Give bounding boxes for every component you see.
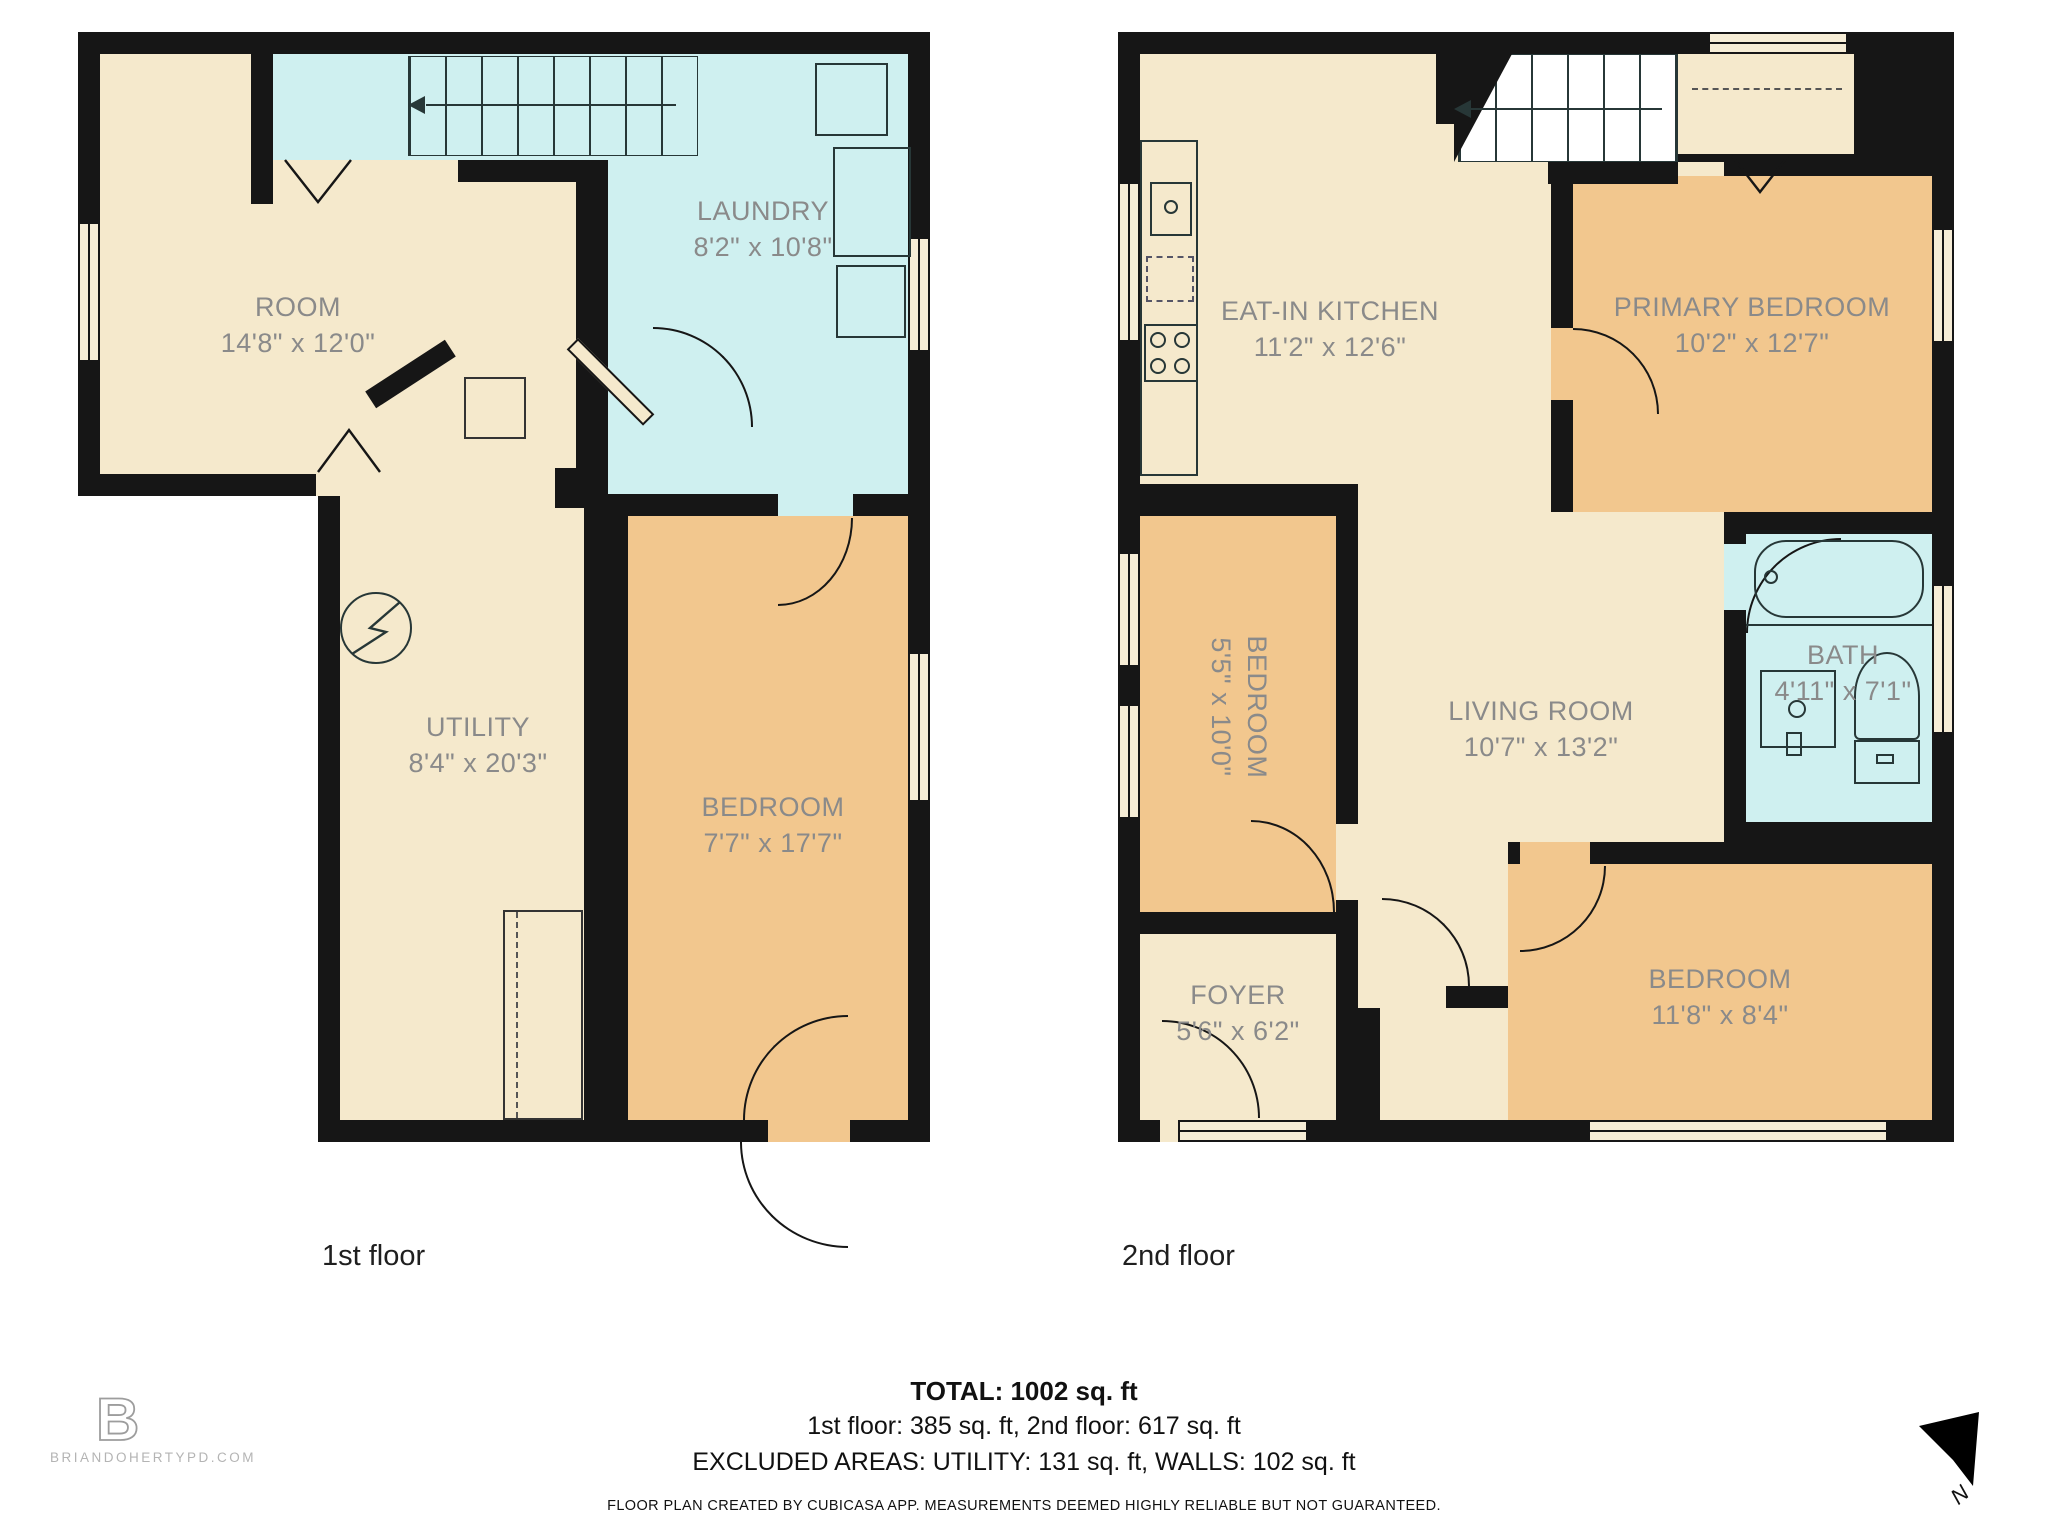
total-area-text: TOTAL: 1002 sq. ft: [0, 1376, 2048, 1407]
room-dims: 4'11" x 7'1": [1703, 674, 1983, 710]
window-icon: [1118, 704, 1140, 819]
burner-icon: [1150, 332, 1166, 348]
room-dims: 11'2" x 12'6": [1180, 330, 1480, 366]
room-dims: 8'4" x 20'3": [328, 746, 628, 782]
room-dims: 10'2" x 12'7": [1532, 326, 1972, 362]
room-name: ROOM: [148, 290, 448, 326]
room-label: BEDROOM 11'8" x 8'4": [1570, 962, 1870, 1034]
window-icon: [1178, 1120, 1308, 1142]
room-label: BEDROOM 7'7" x 17'7": [623, 790, 923, 862]
burner-icon: [1150, 358, 1166, 374]
room-label: ROOM 14'8" x 12'0": [148, 290, 448, 362]
room-label: FOYER 5'6" x 6'2": [1088, 978, 1388, 1050]
room-name: LIVING ROOM: [1391, 694, 1691, 730]
dryer-icon: [836, 265, 906, 338]
room-dims: 8'2" x 10'8": [613, 230, 913, 266]
window-icon: [1118, 552, 1140, 667]
north-arrow-icon: [1916, 1408, 1988, 1492]
sliding-door-icon: [516, 912, 518, 1118]
window-icon: [1118, 182, 1140, 342]
double-door-icon: [283, 158, 353, 204]
room-label: EAT-IN KITCHEN 11'2" x 12'6": [1180, 294, 1480, 366]
closet-niche: [503, 910, 583, 1120]
floor1-caption: 1st floor: [322, 1240, 425, 1273]
room-name: BEDROOM: [1238, 527, 1274, 887]
stair-arrow-shaft: [1470, 108, 1662, 110]
lightning-icon: [340, 592, 412, 664]
room-label: UTILITY 8'4" x 20'3": [328, 710, 628, 782]
door-gap: [1520, 842, 1590, 864]
door-gap: [1724, 544, 1746, 610]
double-door-icon: [316, 428, 382, 474]
wall-segment: [251, 54, 273, 204]
bathtub-icon: [1754, 540, 1924, 618]
double-door-icon: [1730, 154, 1790, 194]
chimney-block: [555, 468, 599, 508]
bath-divider: [1746, 624, 1932, 626]
window-icon: [1588, 1120, 1888, 1142]
room-label: PRIMARY BEDROOM 10'2" x 12'7": [1532, 290, 1972, 362]
window-icon: [1708, 32, 1848, 54]
room-label: BATH 4'11" x 7'1": [1703, 638, 1983, 710]
window-icon: [908, 652, 930, 802]
stair-arrow-icon: [408, 96, 425, 114]
closet-fill: [1678, 54, 1854, 154]
sink-tap-icon: [1786, 732, 1802, 756]
room-name: BEDROOM: [623, 790, 923, 826]
flush-button-icon: [1876, 754, 1894, 764]
room-name: PRIMARY BEDROOM: [1532, 290, 1972, 326]
logo-letter: B: [96, 1386, 139, 1453]
hall-closet-fill: [1380, 1008, 1508, 1120]
room-name: LAUNDRY: [613, 194, 913, 230]
floor2-plan: EAT-IN KITCHEN 11'2" x 12'6" PRIMARY BED…: [1118, 32, 1954, 1142]
room-label: BEDROOM 5'5" x 10'0": [1202, 527, 1274, 887]
room-name: BEDROOM: [1570, 962, 1870, 998]
stair-arrow-shaft: [426, 104, 676, 106]
excluded-areas-text: EXCLUDED AREAS: UTILITY: 131 sq. ft, WAL…: [0, 1448, 2048, 1477]
wall-segment: [458, 160, 608, 182]
room-dims: 10'7" x 13'2": [1391, 730, 1691, 766]
room-name: EAT-IN KITCHEN: [1180, 294, 1480, 330]
floor1-plan: ROOM 14'8" x 12'0" LAUNDRY 8'2" x 10'8" …: [78, 32, 930, 1142]
floor-areas-text: 1st floor: 385 sq. ft, 2nd floor: 617 sq…: [0, 1412, 2048, 1441]
website-text: BRIANDOHERTYPD.COM: [50, 1450, 256, 1465]
door-gap: [778, 494, 853, 516]
floor-cabinet-icon: [464, 377, 526, 439]
floorplan-page: { "colors": {"wall":"#161616","room_beig…: [0, 0, 2048, 1536]
room-dims: 5'5" x 10'0": [1202, 527, 1238, 887]
faucet-icon: [1164, 200, 1178, 214]
door-gap: [316, 474, 382, 496]
logo-icon: B: [92, 1388, 162, 1452]
room-name: UTILITY: [328, 710, 628, 746]
door-arc-icon: [740, 1142, 848, 1248]
room-dims: 14'8" x 12'0": [148, 326, 448, 362]
disclaimer-text: FLOOR PLAN CREATED BY CUBICASA APP. MEAS…: [0, 1498, 2048, 1514]
room-label: LAUNDRY 8'2" x 10'8": [613, 194, 913, 266]
room-label: LIVING ROOM 10'7" x 13'2": [1391, 694, 1691, 766]
room-dims: 11'8" x 8'4": [1570, 998, 1870, 1034]
washer-icon: [815, 63, 888, 136]
window-icon: [78, 222, 100, 362]
door-gap: [768, 1120, 850, 1142]
room-dims: 5'6" x 6'2": [1088, 1014, 1388, 1050]
tub-faucet-icon: [1764, 570, 1778, 584]
room-name: FOYER: [1088, 978, 1388, 1014]
room-name: BATH: [1703, 638, 1983, 674]
stair-arrow-icon: [1454, 100, 1471, 118]
wall-segment: [1446, 986, 1508, 1008]
floor2-caption: 2nd floor: [1122, 1240, 1235, 1273]
room-dims: 7'7" x 17'7": [623, 826, 923, 862]
closet-rod-icon: [1692, 88, 1842, 90]
staircase: [408, 56, 698, 156]
door-gap: [1336, 824, 1358, 900]
